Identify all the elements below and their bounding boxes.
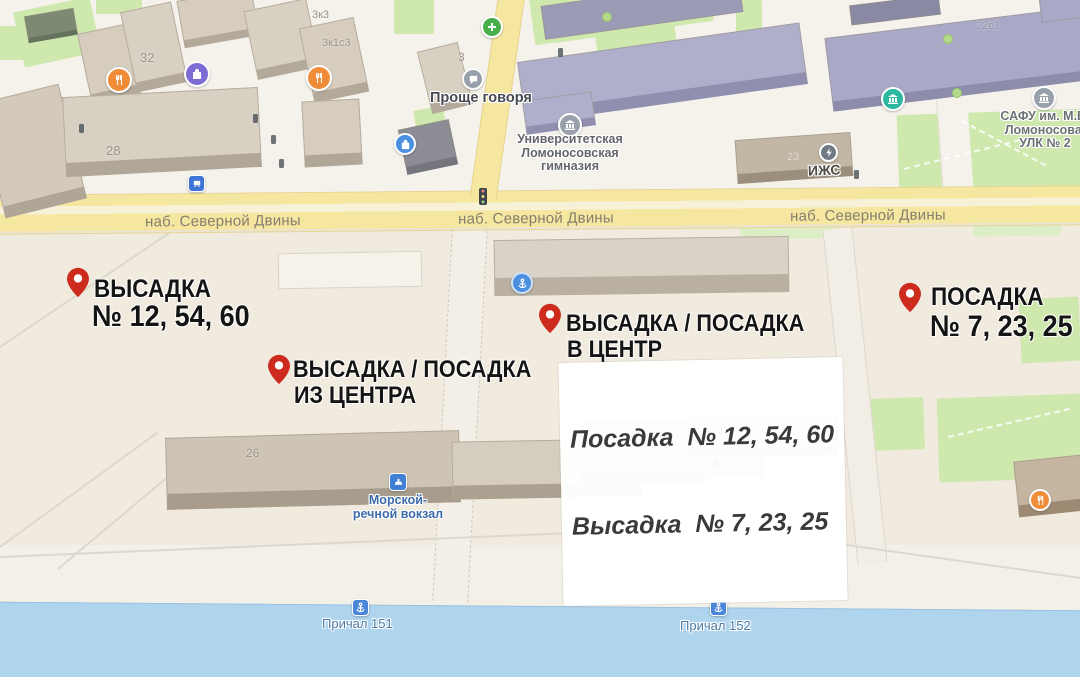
gymnasium-line: Университетская: [510, 133, 630, 147]
parking-lot: [278, 251, 423, 290]
shop-icon[interactable]: [394, 133, 416, 155]
gymnasium-line: Ломоносовская: [510, 147, 630, 161]
poi-label-gymnasium: Университетская Ломоносовская гимназия: [510, 133, 630, 174]
signpost-icon: [279, 159, 284, 168]
poi-icon-orange[interactable]: [1029, 489, 1051, 511]
route-note-line2: Высадка № 7, 23, 25: [572, 507, 837, 542]
map-pin-icon[interactable]: [538, 303, 562, 334]
annotation-west-line1: ВЫСАДКА: [94, 276, 211, 302]
building: [301, 99, 362, 168]
building: [62, 87, 262, 177]
signpost-icon: [854, 170, 859, 179]
pharmacy-icon[interactable]: [481, 16, 503, 38]
pin-west-dropoff[interactable]: [66, 267, 90, 303]
road-name-label: наб. Северной Двины: [458, 209, 614, 227]
pin-to-center[interactable]: [538, 303, 562, 339]
transit-stop-icon[interactable]: [188, 175, 205, 192]
pin-from-center[interactable]: [267, 354, 291, 390]
gymnasium-line: гимназия: [510, 160, 630, 174]
map-pin-icon[interactable]: [898, 282, 922, 313]
signpost-icon: [558, 48, 563, 57]
building-number: 3к3: [312, 9, 329, 21]
annotation-from-center-line2: ИЗ ЦЕНТРА: [294, 383, 416, 408]
annotation-east-line1: ПОСАДКА: [931, 284, 1043, 310]
map-pin-icon[interactable]: [66, 267, 90, 298]
university-icon[interactable]: [1032, 86, 1056, 110]
building-number: 3: [458, 50, 465, 64]
building-number: 23: [787, 151, 799, 163]
vokzal-line: Морской-: [350, 494, 446, 508]
building-number: 32: [140, 50, 154, 65]
signpost-icon: [79, 124, 84, 133]
green-area: [394, 0, 434, 34]
poi-label-pier151: Причал 151: [322, 616, 393, 631]
annotation-east-line2: № 7, 23, 25: [930, 311, 1073, 343]
tree-icon: [943, 34, 953, 44]
vokzal-line: речной вокзал: [350, 508, 446, 522]
map-canvas[interactable]: наб. Северной Двины наб. Северной Двины …: [0, 0, 1080, 677]
pier-icon[interactable]: [352, 599, 369, 616]
traffic-light-icon: [479, 188, 487, 205]
speech-poi-icon[interactable]: [462, 68, 484, 90]
cafe-icon[interactable]: [106, 67, 132, 93]
road-name-label: наб. Северной Двины: [145, 212, 301, 230]
harbor-poi-icon[interactable]: [511, 272, 533, 294]
map-pin-icon[interactable]: [267, 354, 291, 385]
safu-line: Ломоносова,: [995, 124, 1080, 138]
university-icon-teal[interactable]: [881, 87, 905, 111]
building-long: [494, 236, 790, 296]
route-note-box: Посадка № 12, 54, 60 Высадка № 7, 23, 25: [558, 357, 847, 606]
building-number: 26: [246, 446, 259, 460]
signpost-icon: [253, 114, 258, 123]
signpost-icon: [271, 135, 276, 144]
cafe-icon[interactable]: [306, 65, 332, 91]
road-name-label: наб. Северной Двины: [790, 206, 946, 224]
river-water: [0, 602, 1080, 677]
safu-line: САФУ им. М.В.: [995, 110, 1080, 124]
tree-icon: [952, 88, 962, 98]
izhs-poi-icon[interactable]: [819, 143, 838, 162]
tree-icon: [602, 12, 612, 22]
route-note-line1: Посадка № 12, 54, 60: [570, 420, 835, 455]
building-number: 22с1: [976, 20, 1000, 32]
poi-label-pier152: Причал 152: [680, 618, 751, 633]
safu-line: УЛК № 2: [995, 137, 1080, 151]
building-number: 3к1с3: [322, 37, 351, 49]
annotation-west-line2: № 12, 54, 60: [92, 301, 250, 333]
annotation-from-center-line1: ВЫСАДКА / ПОСАДКА: [293, 357, 531, 382]
annotation-to-center-line1: ВЫСАДКА / ПОСАДКА: [566, 311, 804, 336]
poi-icon-purple[interactable]: [184, 61, 210, 87]
river-terminal-icon[interactable]: [389, 473, 407, 491]
pin-east-pickup[interactable]: [898, 282, 922, 318]
poi-label-prosche: Проще говоря: [430, 90, 520, 106]
green-area: [869, 397, 925, 451]
poi-label-safu: САФУ им. М.В. Ломоносова, УЛК № 2: [995, 110, 1080, 151]
building-number: 28: [106, 143, 120, 158]
poi-label-izhs: ИЖС: [808, 161, 841, 178]
poi-label-vokzal: Морской- речной вокзал: [350, 494, 446, 521]
annotation-to-center-line2: В ЦЕНТР: [567, 337, 662, 362]
